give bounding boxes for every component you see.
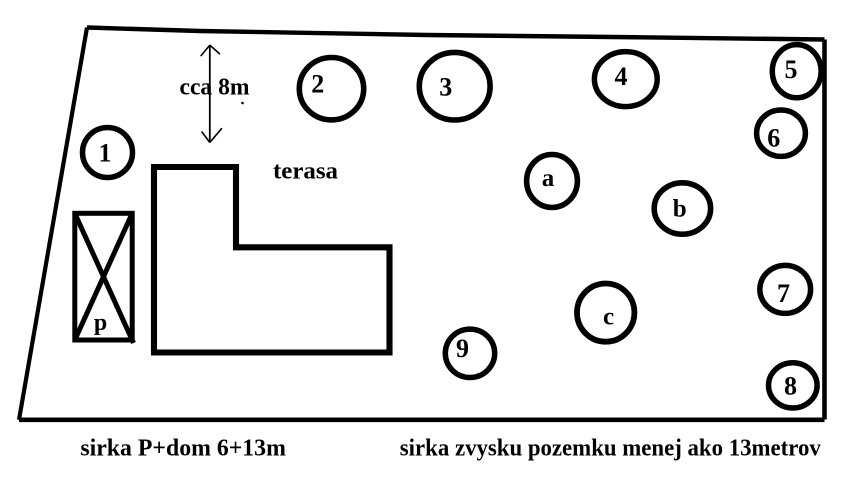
- svg-text:2: 2: [311, 70, 324, 99]
- svg-text:b: b: [673, 196, 687, 223]
- svg-text:1: 1: [99, 139, 112, 168]
- svg-text:3: 3: [439, 72, 452, 101]
- svg-text:p: p: [94, 310, 107, 336]
- svg-text:cca 8m: cca 8m: [180, 75, 250, 101]
- svg-text:terasa: terasa: [273, 159, 338, 185]
- svg-text:a: a: [542, 165, 555, 192]
- svg-text:4: 4: [615, 62, 628, 91]
- svg-text:7: 7: [777, 279, 790, 308]
- svg-text:9: 9: [456, 334, 469, 363]
- svg-text:sirka P+dom 6+13m: sirka P+dom 6+13m: [80, 436, 286, 462]
- svg-text:5: 5: [785, 55, 798, 84]
- svg-text:c: c: [603, 303, 614, 330]
- svg-text:6: 6: [767, 123, 780, 152]
- svg-text:sirka zvysku pozemku menej ako: sirka zvysku pozemku menej ako 13metrov: [400, 436, 821, 462]
- svg-text:8: 8: [784, 372, 797, 401]
